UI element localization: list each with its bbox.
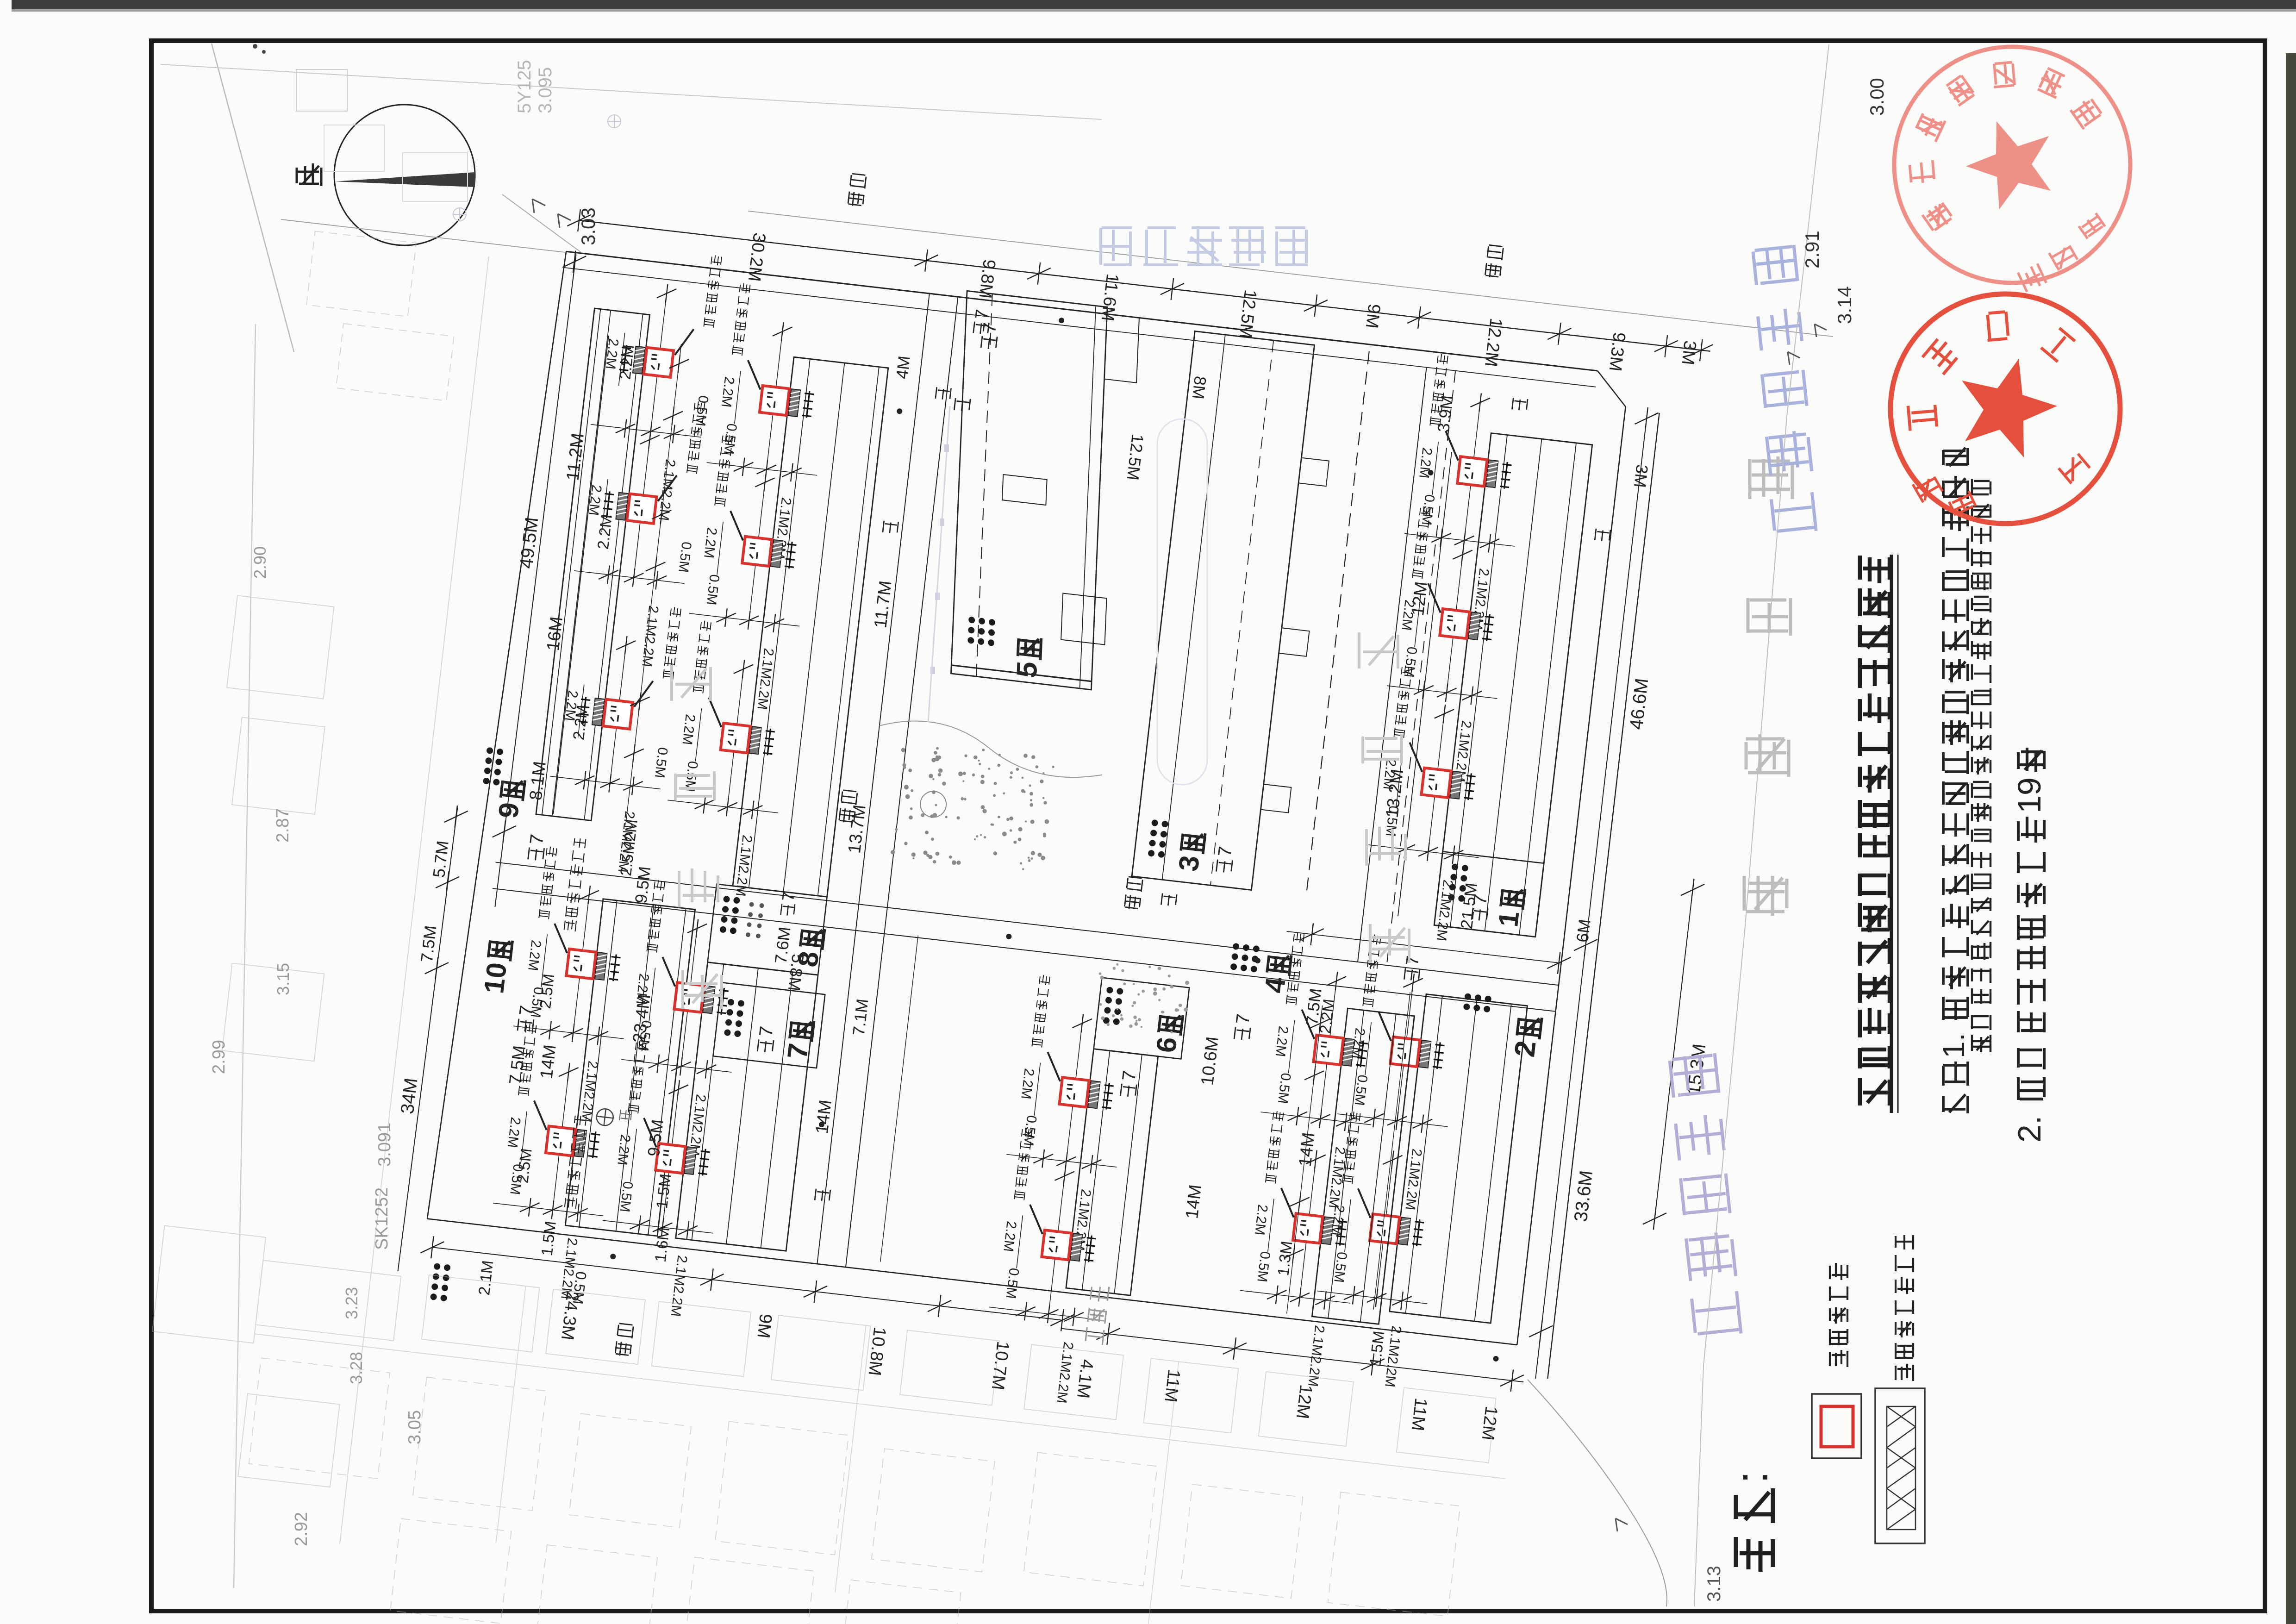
svg-text:1.: 1. bbox=[1936, 1033, 1971, 1058]
svg-text:9M: 9M bbox=[753, 1313, 775, 1339]
svg-text:14M: 14M bbox=[1182, 1184, 1205, 1220]
svg-text:2.92: 2.92 bbox=[292, 1512, 311, 1546]
svg-text:16M: 16M bbox=[543, 616, 567, 652]
svg-text:3.23: 3.23 bbox=[342, 1287, 361, 1319]
svg-text:5Y125: 5Y125 bbox=[514, 60, 535, 113]
svg-text:12M: 12M bbox=[1408, 581, 1431, 617]
svg-text:14M: 14M bbox=[537, 1043, 560, 1080]
svg-text:4M: 4M bbox=[892, 355, 913, 380]
svg-text:2.99: 2.99 bbox=[209, 1040, 229, 1074]
svg-text:2.87: 2.87 bbox=[273, 808, 293, 843]
svg-text:34M: 34M bbox=[397, 1077, 422, 1115]
svg-text:2.90: 2.90 bbox=[250, 546, 269, 579]
svg-text:14M: 14M bbox=[812, 1099, 836, 1135]
svg-text:2.: 2. bbox=[2011, 1116, 2047, 1143]
svg-text:2.91: 2.91 bbox=[1801, 231, 1823, 269]
svg-text:19: 19 bbox=[2011, 777, 2047, 813]
svg-text:11M: 11M bbox=[1160, 1368, 1184, 1403]
svg-text:3.14: 3.14 bbox=[1834, 286, 1855, 324]
svg-text::: : bbox=[1726, 1471, 1778, 1484]
svg-text:3.15: 3.15 bbox=[274, 963, 293, 995]
svg-text:6M: 6M bbox=[1572, 918, 1594, 943]
svg-text:3.095: 3.095 bbox=[535, 67, 555, 113]
svg-text:12M: 12M bbox=[1292, 1384, 1316, 1420]
svg-text:3M: 3M bbox=[1678, 339, 1700, 366]
svg-text:9M: 9M bbox=[1362, 303, 1384, 329]
svg-text:10: 10 bbox=[478, 961, 512, 995]
svg-text:3.03: 3.03 bbox=[577, 207, 599, 245]
svg-text:3.091: 3.091 bbox=[375, 1123, 394, 1167]
svg-text:3.05: 3.05 bbox=[405, 1410, 424, 1444]
svg-text:11M: 11M bbox=[1408, 1397, 1431, 1431]
svg-text:12M: 12M bbox=[1478, 1405, 1501, 1441]
svg-text:3.00: 3.00 bbox=[1866, 78, 1888, 116]
svg-text:3.28: 3.28 bbox=[347, 1352, 366, 1384]
svg-text:8M: 8M bbox=[1189, 375, 1210, 400]
svg-text:3.13: 3.13 bbox=[1704, 1566, 1724, 1602]
svg-text:SK1252: SK1252 bbox=[372, 1187, 392, 1250]
